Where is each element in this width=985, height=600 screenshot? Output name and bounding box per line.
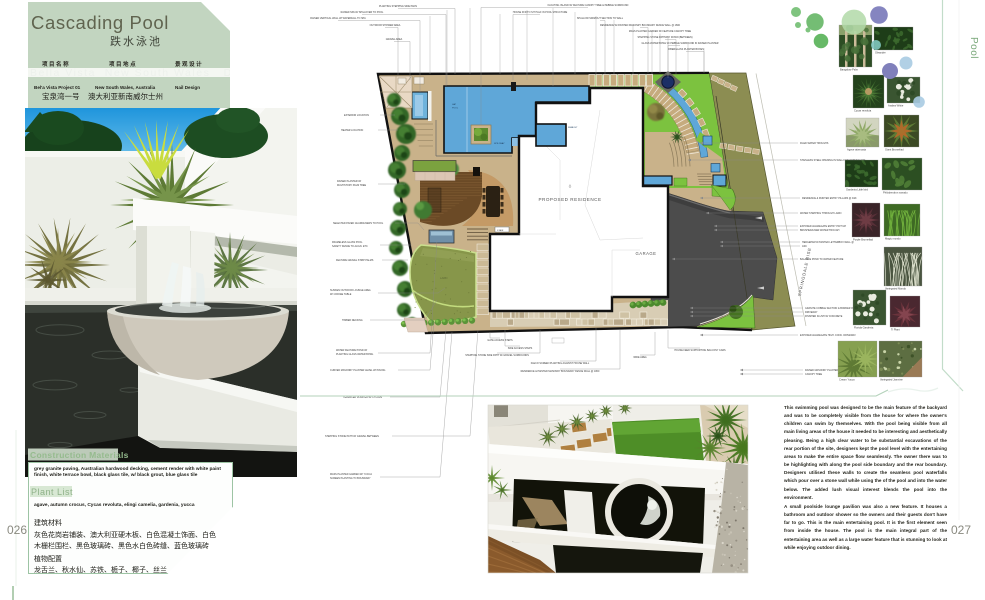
svg-text:LAP: LAP <box>452 103 457 106</box>
svg-text:RAISED SPA W/ SPILLOVER TO POO: RAISED SPA W/ SPILLOVER TO POOL <box>341 11 384 14</box>
svg-text:CURVED MASONRY PLANTER LEVEL W: CURVED MASONRY PLANTER LEVEL W/ PAVING <box>330 369 385 372</box>
svg-text:FINISHED FLUSH W/ CONCRETE: FINISHED FLUSH W/ CONCRETE <box>805 315 843 318</box>
svg-text:SPILLWAY: SPILLWAY <box>494 142 505 145</box>
svg-text:STEPPING STONE SIDE PATH W/ GR: STEPPING STONE SIDE PATH W/ GRAVEL SURRO… <box>465 354 529 357</box>
svg-text:SUNKEN OUTDOOR LOUNGE AREA: SUNKEN OUTDOOR LOUNGE AREA <box>330 289 371 292</box>
svg-text:EXTERIOR LOCATION: EXTERIOR LOCATION <box>344 114 369 117</box>
svg-text:SELECTED PAVED GUARDLINERS TO: SELECTED PAVED GUARDLINERS TO POOL <box>333 222 384 225</box>
svg-text:HOUSE FFR TO SIT HALF IN POOL: HOUSE FFR TO SIT HALF IN POOL STRUCTURE <box>513 11 568 14</box>
svg-text:STEPPING STONE PATH W/ GRAVEL: STEPPING STONE PATH W/ GRAVEL BETWEEN <box>325 435 379 438</box>
svg-text:DRIVEWAY: DRIVEWAY <box>805 311 818 314</box>
svg-text:OUTDOOR SHOWER AREA: OUTDOOR SHOWER AREA <box>370 24 401 27</box>
svg-text:MULTISTORY PALM TREE: MULTISTORY PALM TREE <box>337 184 366 187</box>
svg-text:HEATER LOCATION: HEATER LOCATION <box>341 129 363 132</box>
svg-text:PROPOSED RESIDENCE: PROPOSED RESIDENCE <box>538 197 601 202</box>
svg-text:FLOATING ISLAND W/ FEATURE CAN: FLOATING ISLAND W/ FEATURE CANOPY TREE &… <box>548 4 629 7</box>
svg-text:CANOPY TREE: CANOPY TREE <box>805 373 822 376</box>
svg-text:Bangalow Palm: Bangalow Palm <box>840 68 858 72</box>
svg-text:FLECO SCREEN PLANTING AGAINST: FLECO SCREEN PLANTING AGAINST HOUSE WALL <box>531 362 590 365</box>
svg-text:GLASS WATER BOWL W/ PEBBLE SUR: GLASS WATER BOWL W/ PEBBLE SURROUND IN R… <box>642 42 719 45</box>
svg-text:RESIDENCE & PAINTED ENTRY PILL: RESIDENCE & PAINTED ENTRY PILLARS @ ASK <box>802 197 857 200</box>
svg-text:W/ COFFEE TABLE: W/ COFFEE TABLE <box>330 293 352 296</box>
svg-text:GRAVEL AREA: GRAVEL AREA <box>386 38 403 41</box>
svg-text:Magic mondo: Magic mondo <box>885 237 901 241</box>
svg-text:Cream Yucca: Cream Yucca <box>839 378 855 382</box>
svg-text:Gardenia Little bird: Gardenia Little bird <box>846 188 868 192</box>
svg-text:RAISED VERTICAL WALL W/ WATERF: RAISED VERTICAL WALL W/ WATERFALL TO SPA <box>310 17 366 20</box>
svg-text:SIDE ACCESS STEPS: SIDE ACCESS STEPS <box>508 347 533 350</box>
svg-text:LAWN: LAWN <box>440 276 448 280</box>
svg-text:Purple Bromeliad: Purple Bromeliad <box>853 238 873 242</box>
svg-text:FRAMELESS GLASS POOL: FRAMELESS GLASS POOL <box>332 241 363 244</box>
svg-text:SCREEN PLANTING TO BOUNDARY: SCREEN PLANTING TO BOUNDARY <box>330 477 371 480</box>
svg-text:Azalea White: Azalea White <box>888 104 904 108</box>
svg-text:MASS PLANTED GARDEN W/ FEATURE: MASS PLANTED GARDEN W/ FEATURE CANOPY TR… <box>629 30 692 33</box>
svg-text:MASS PLANTED GARDEN W/ YUCCA: MASS PLANTED GARDEN W/ YUCCA <box>330 473 372 476</box>
svg-text:RESIDENCE W/ PAINTED MASONRY B: RESIDENCE W/ PAINTED MASONRY BOUNDARY FE… <box>600 24 681 27</box>
svg-text:Cycas revoluta: Cycas revoluta <box>854 109 872 113</box>
svg-text:EXPOSED AGGREGATE HIGH. CONC.: EXPOSED AGGREGATE HIGH. CONC. DRIVEWAY <box>800 334 856 337</box>
svg-text:Giant Bromeliad: Giant Bromeliad <box>885 148 904 152</box>
svg-text:EXPOSED AGGREGATE ENTRY PATH W: EXPOSED AGGREGATE ENTRY PATH W/ <box>800 225 846 228</box>
svg-text:FIBERGLASS PLANTER BOXES: FIBERGLASS PLANTER BOXES <box>668 48 704 51</box>
svg-text:BRUSHED/LINER WATER TROUGH: BRUSHED/LINER WATER TROUGH <box>800 229 840 232</box>
svg-text:PLANTING STEPPING SIDE PADS: PLANTING STEPPING SIDE PADS <box>379 5 417 8</box>
svg-text:TIMBER DECKING: TIMBER DECKING <box>342 319 363 322</box>
svg-text:HOUSE FEED SUPPORTING BALCONY: HOUSE FEED SUPPORTING BALCONY CARS <box>674 349 726 352</box>
svg-text:Florida Gardenia: Florida Gardenia <box>854 326 874 330</box>
svg-text:PLANTING GLASS WATER BOWL: PLANTING GLASS WATER BOWL <box>336 353 374 356</box>
svg-text:Variegated Mondo: Variegated Mondo <box>885 287 907 291</box>
svg-text:SPRINGDALE RISE: SPRINGDALE RISE <box>797 247 812 297</box>
svg-text:FILED WATER TROUGHS: FILED WATER TROUGHS <box>800 142 829 145</box>
svg-text:WIDE AREA: WIDE AREA <box>633 356 647 359</box>
svg-text:RAISED PLANTER W/: RAISED PLANTER W/ <box>337 180 362 183</box>
svg-text:RESIDENCE & PAINTED MASONRY BO: RESIDENCE & PAINTED MASONRY BOUNDARY FEN… <box>521 370 600 373</box>
svg-text:POOL: POOL <box>452 107 459 109</box>
svg-text:SAFETY FENCE TO ALIGN. ETC: SAFETY FENCE TO ALIGN. ETC <box>332 245 368 248</box>
svg-text:WATER STEPPING THROUGH LAWN: WATER STEPPING THROUGH LAWN <box>800 212 842 215</box>
svg-text:Philodendron xanadu: Philodendron xanadu <box>883 191 908 195</box>
svg-text:GATE ACCESS STEPS: GATE ACCESS STEPS <box>487 339 513 342</box>
svg-text:STEPPING STONE PATHWAY DOWN (B: STEPPING STONE PATHWAY DOWN (BETWEEN) <box>637 36 692 39</box>
svg-text:GARAGE: GARAGE <box>636 251 657 256</box>
svg-text:STAIR: STAIR <box>497 229 504 232</box>
svg-text:FEATURE GRAVEL STRIP PALMS: FEATURE GRAVEL STRIP PALMS <box>336 259 374 262</box>
svg-text:SHALLOW SWIMOUT SECTION TO WAL: SHALLOW SWIMOUT SECTION TO WALL <box>577 17 624 20</box>
svg-text:Oleander: Oleander <box>875 51 886 55</box>
svg-text:Agave attenuata: Agave attenuata <box>847 148 866 152</box>
svg-text:WATER FEATURE POND W/: WATER FEATURE POND W/ <box>336 349 367 352</box>
svg-text:SPABOUT: SPABOUT <box>568 126 578 129</box>
svg-text:HEDGEPANTA PAINTED LETTERBOX W: HEDGEPANTA PAINTED LETTERBOX WALL @ <box>802 241 854 244</box>
svg-text:Ti Plant: Ti Plant <box>891 328 900 332</box>
svg-text:Variegated Jasmine: Variegated Jasmine <box>880 378 903 382</box>
